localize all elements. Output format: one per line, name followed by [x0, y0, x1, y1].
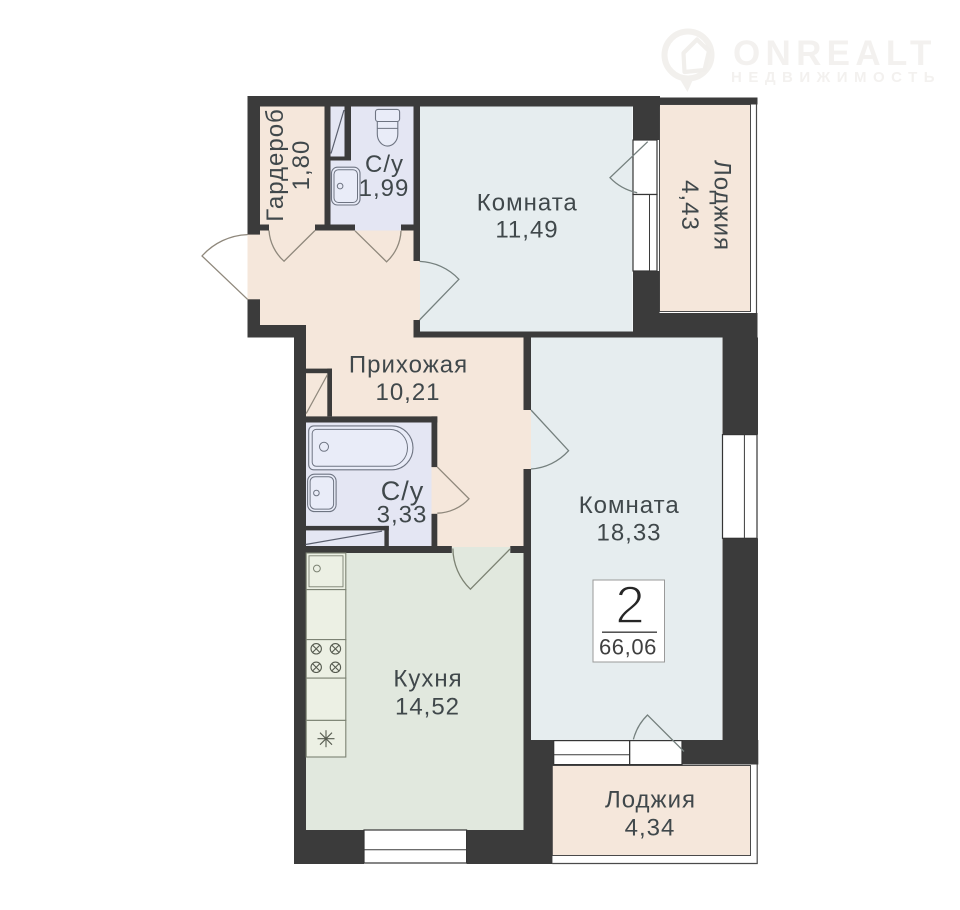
svg-text:2: 2	[615, 576, 644, 635]
svg-text:ONREALT: ONREALT	[733, 34, 937, 73]
svg-text:Кухня14,52: Кухня14,52	[393, 666, 462, 721]
svg-text:66,06: 66,06	[599, 634, 657, 659]
svg-text:С/у1,99: С/у1,99	[359, 151, 410, 202]
svg-text:С/у3,33: С/у3,33	[377, 476, 428, 529]
svg-text:НЕДВИЖИМОСТЬ: НЕДВИЖИМОСТЬ	[731, 69, 941, 86]
